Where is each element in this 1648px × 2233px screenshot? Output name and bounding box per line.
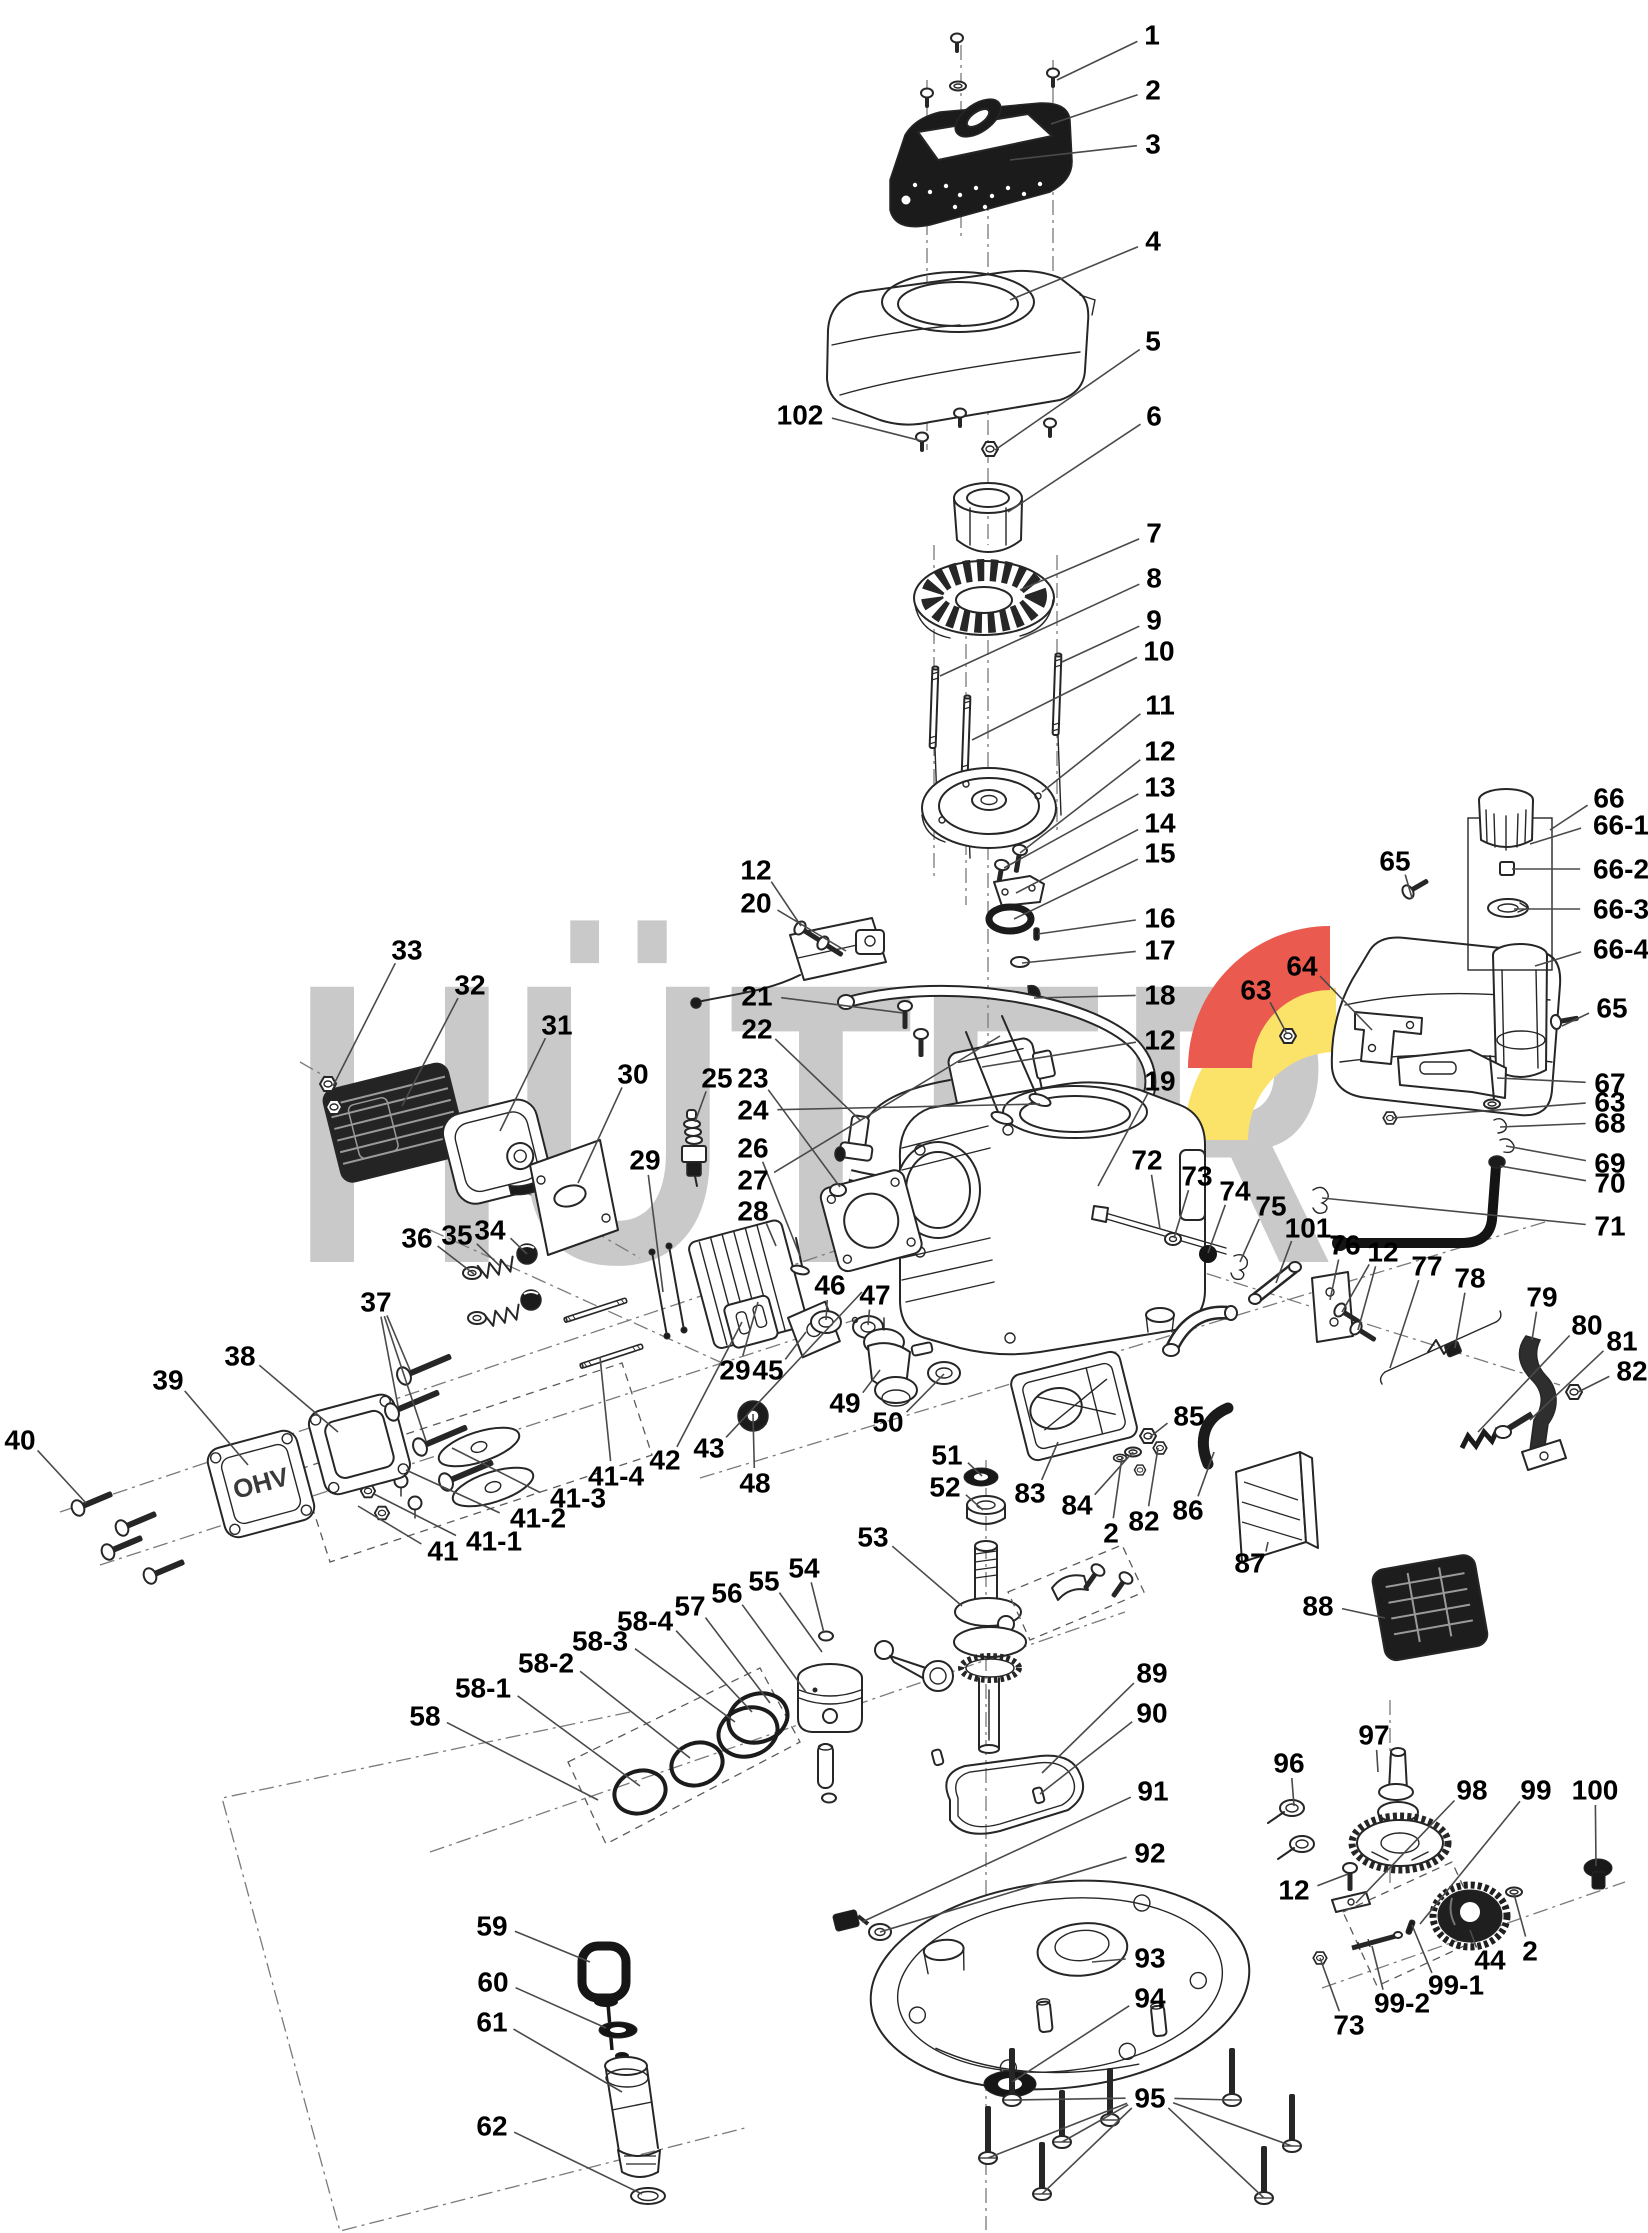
callout-leader-12 xyxy=(1317,1874,1348,1886)
oil-plug-100 xyxy=(1584,1859,1612,1889)
rod-cap-box xyxy=(1008,1545,1144,1640)
callout-leader-12 xyxy=(1358,1266,1376,1330)
callout-leader-40 xyxy=(38,1450,86,1503)
callout-label-99-1: 99-1 xyxy=(1428,1970,1484,2001)
callout-label-49: 49 xyxy=(829,1388,860,1419)
callout-label-74: 74 xyxy=(1219,1176,1251,1207)
callout-label-98: 98 xyxy=(1456,1775,1487,1806)
tappets-96 xyxy=(1268,1800,1314,1859)
callout-label-15: 15 xyxy=(1144,838,1175,869)
callout-label-54: 54 xyxy=(788,1553,820,1584)
callout-label-22: 22 xyxy=(741,1014,772,1045)
callout-leader-95 xyxy=(1168,2108,1264,2198)
air-filter-cover xyxy=(1371,1553,1489,1662)
callout-label-77: 77 xyxy=(1411,1251,1442,1282)
callout-label-63: 63 xyxy=(1240,975,1271,1006)
callout-label-58-3: 58-3 xyxy=(572,1626,628,1657)
callout-leader-82 xyxy=(1578,1376,1609,1392)
callout-label-12: 12 xyxy=(1144,1025,1175,1056)
callout-leader-70 xyxy=(1500,1166,1586,1181)
callout-label-17: 17 xyxy=(1144,935,1175,966)
callout-leader-14 xyxy=(1016,830,1138,893)
callout-label-53: 53 xyxy=(857,1522,888,1553)
callout-label-58: 58 xyxy=(409,1701,440,1732)
flywheel-magneto-disc xyxy=(922,768,1056,848)
callout-leader-71 xyxy=(1322,1198,1586,1225)
callout-label-80: 80 xyxy=(1571,1310,1602,1341)
callout-label-50: 50 xyxy=(872,1407,903,1438)
callout-label-88: 88 xyxy=(1302,1591,1333,1622)
callout-label-31: 31 xyxy=(541,1010,572,1041)
callout-label-24: 24 xyxy=(737,1095,769,1126)
callout-label-64: 64 xyxy=(1286,951,1318,982)
callout-label-13: 13 xyxy=(1144,772,1175,803)
callout-label-101: 101 xyxy=(1285,1213,1332,1244)
callout-label-47: 47 xyxy=(859,1280,890,1311)
flywheel-fan xyxy=(914,561,1054,638)
callout-leader-69 xyxy=(1506,1146,1586,1161)
callout-label-100: 100 xyxy=(1572,1775,1619,1806)
callout-label-81: 81 xyxy=(1606,1326,1637,1357)
callout-label-33: 33 xyxy=(391,935,422,966)
callout-label-12: 12 xyxy=(1144,736,1175,767)
callout-label-34: 34 xyxy=(474,1215,506,1246)
callout-label-23: 23 xyxy=(737,1063,768,1094)
callout-label-65: 65 xyxy=(1596,993,1627,1024)
air-filter-element xyxy=(1236,1452,1318,1562)
callout-label-12: 12 xyxy=(1278,1875,1309,1906)
callout-label-78: 78 xyxy=(1454,1263,1485,1294)
callout-leader-97 xyxy=(1377,1750,1378,1772)
callout-label-20: 20 xyxy=(740,888,771,919)
blower-shroud xyxy=(827,271,1095,438)
callout-leader-58-1 xyxy=(518,1696,640,1786)
callout-label-26: 26 xyxy=(737,1133,768,1164)
callout-label-82: 82 xyxy=(1616,1356,1647,1387)
callout-label-62: 62 xyxy=(476,2111,507,2142)
callout-label-68: 68 xyxy=(1594,1108,1625,1139)
callout-label-66-4: 66-4 xyxy=(1593,934,1648,965)
callout-label-46: 46 xyxy=(814,1270,845,1301)
callout-label-52: 52 xyxy=(929,1472,960,1503)
callout-label-45: 45 xyxy=(752,1355,783,1386)
governor-arm-79 xyxy=(1519,1336,1566,1470)
governor-link-77-78 xyxy=(1381,1311,1501,1384)
callout-leader-7 xyxy=(1020,539,1139,590)
callout-leader-61 xyxy=(514,2029,623,2092)
screw-12-cam xyxy=(1343,1863,1357,1891)
callout-label-61: 61 xyxy=(476,2007,507,2038)
fuel-cap xyxy=(1479,789,1533,850)
callout-leader-79 xyxy=(1532,1312,1537,1340)
callout-label-19: 19 xyxy=(1144,1066,1175,1097)
callout-label-90: 90 xyxy=(1136,1698,1167,1729)
callout-label-83: 83 xyxy=(1014,1478,1045,1509)
callout-label-86: 86 xyxy=(1172,1495,1203,1526)
callout-label-30: 30 xyxy=(617,1059,648,1090)
callout-label-94: 94 xyxy=(1134,1983,1166,2014)
callout-leader-82 xyxy=(1149,1448,1158,1506)
oil-seal-51 xyxy=(964,1468,998,1486)
callout-leader-90 xyxy=(1040,1722,1132,1794)
cover-bolts-40 xyxy=(69,1486,187,1586)
callout-label-5: 5 xyxy=(1145,326,1161,357)
callout-leader-54 xyxy=(811,1582,824,1633)
connecting-rod xyxy=(875,1641,953,1691)
callout-label-84: 84 xyxy=(1061,1490,1093,1521)
callout-label-73: 73 xyxy=(1333,2010,1364,2041)
callout-leader-73 xyxy=(1320,1958,1339,2011)
callout-leader-59 xyxy=(515,1931,590,1962)
camshaft xyxy=(1352,1748,1448,1870)
callout-label-41-4: 41-4 xyxy=(588,1461,644,1492)
dipstick-tube xyxy=(605,2057,665,2204)
crankcase-cover xyxy=(860,1863,1259,2108)
callout-label-9: 9 xyxy=(1146,605,1162,636)
callout-label-18: 18 xyxy=(1144,980,1175,1011)
callout-label-27: 27 xyxy=(737,1165,768,1196)
callout-label-75: 75 xyxy=(1255,1191,1286,1222)
valve-cover: OHV xyxy=(205,1428,318,1541)
callout-label-48: 48 xyxy=(739,1468,770,1499)
callout-label-2: 2 xyxy=(1145,75,1161,106)
callout-label-42: 42 xyxy=(649,1445,680,1476)
callout-label-28: 28 xyxy=(737,1196,768,1227)
callout-label-35: 35 xyxy=(441,1220,472,1251)
callout-leader-100 xyxy=(1595,1805,1596,1866)
callout-label-10: 10 xyxy=(1143,636,1174,667)
callout-label-66-3: 66-3 xyxy=(1593,894,1648,925)
callout-label-43: 43 xyxy=(693,1433,724,1464)
callout-leader-95 xyxy=(1173,2103,1292,2146)
callout-leader-58-4 xyxy=(676,1631,752,1712)
callout-label-36: 36 xyxy=(401,1223,432,1254)
callout-label-102: 102 xyxy=(777,400,824,431)
callout-label-56: 56 xyxy=(711,1578,742,1609)
callout-leader-9 xyxy=(1062,626,1139,662)
callout-label-29: 29 xyxy=(629,1145,660,1176)
callout-label-37: 37 xyxy=(360,1287,391,1318)
callout-label-72: 72 xyxy=(1131,1145,1162,1176)
callout-label-41: 41 xyxy=(427,1536,458,1567)
callout-label-76: 76 xyxy=(1329,1230,1360,1261)
governor-bracket-76 xyxy=(1312,1272,1379,1346)
callout-label-82: 82 xyxy=(1128,1506,1159,1537)
callout-label-99: 99 xyxy=(1520,1775,1551,1806)
callout-label-2: 2 xyxy=(1522,1936,1538,1967)
callout-label-70: 70 xyxy=(1594,1168,1625,1199)
callout-leader-95 xyxy=(1042,2108,1132,2194)
case-gasket-89 xyxy=(931,1749,1083,1834)
callout-label-65: 65 xyxy=(1379,846,1410,877)
callout-label-87: 87 xyxy=(1234,1548,1265,1579)
callout-leader-66-1 xyxy=(1530,828,1581,844)
callout-label-2: 2 xyxy=(1103,1518,1119,1549)
callout-label-99-2: 99-2 xyxy=(1374,1988,1430,2019)
callout-label-91: 91 xyxy=(1137,1776,1168,1807)
callout-label-66-2: 66-2 xyxy=(1593,854,1648,885)
callout-label-58-2: 58-2 xyxy=(518,1648,574,1679)
callout-leader-6 xyxy=(1008,424,1141,512)
callout-label-38: 38 xyxy=(224,1341,255,1372)
callout-label-93: 93 xyxy=(1134,1943,1165,1974)
callout-label-60: 60 xyxy=(477,1967,508,1998)
piston xyxy=(798,1664,862,1732)
callout-label-89: 89 xyxy=(1136,1658,1167,1689)
callout-leader-58-2 xyxy=(580,1671,690,1758)
callout-label-32: 32 xyxy=(454,970,485,1001)
callout-leader-2 xyxy=(1514,1894,1526,1937)
callout-label-6: 6 xyxy=(1146,401,1162,432)
callout-label-4: 4 xyxy=(1145,226,1161,257)
callout-label-59: 59 xyxy=(476,1911,507,1942)
exploded-engine-diagram: HÜTER xyxy=(0,0,1648,2233)
callout-leader-58 xyxy=(447,1723,598,1800)
dipstick xyxy=(582,1946,637,2060)
callout-label-92: 92 xyxy=(1134,1838,1165,1869)
callout-label-11: 11 xyxy=(1145,690,1175,721)
callout-leader-66 xyxy=(1550,805,1588,830)
callout-label-79: 79 xyxy=(1526,1282,1557,1313)
callout-label-7: 7 xyxy=(1146,518,1162,549)
callout-label-51: 51 xyxy=(931,1440,962,1471)
callout-label-8: 8 xyxy=(1146,563,1162,594)
callout-label-1: 1 xyxy=(1144,20,1160,51)
breather-tube xyxy=(1203,1408,1228,1464)
callout-leader-78 xyxy=(1455,1293,1465,1348)
callout-leader-53 xyxy=(892,1546,962,1606)
callout-label-73: 73 xyxy=(1181,1161,1212,1192)
callout-label-14: 14 xyxy=(1144,808,1176,839)
callout-leader-77 xyxy=(1390,1280,1419,1368)
callout-label-21: 21 xyxy=(741,981,772,1012)
recoil-starter-cover xyxy=(890,92,1072,227)
callout-leader-95 xyxy=(988,2103,1127,2158)
carb-spacer-gasket xyxy=(928,1362,960,1384)
callout-label-12: 12 xyxy=(740,855,771,886)
callout-label-57: 57 xyxy=(674,1591,705,1622)
bolt-102 xyxy=(916,433,928,453)
bolt-81 xyxy=(1495,1414,1532,1438)
fuel-filter-neck xyxy=(1493,944,1547,1077)
callout-leader-58-3 xyxy=(635,1649,735,1722)
callout-label-96: 96 xyxy=(1273,1748,1304,1779)
callout-label-16: 16 xyxy=(1144,903,1175,934)
callout-leader-89 xyxy=(1042,1683,1134,1773)
callout-leader-1 xyxy=(1057,41,1137,80)
callout-label-39: 39 xyxy=(152,1365,183,1396)
callout-label-55: 55 xyxy=(748,1566,779,1597)
air-filter-base xyxy=(1009,1350,1139,1462)
callout-leader-38 xyxy=(259,1365,338,1432)
callout-leader-2 xyxy=(1113,1457,1122,1518)
callout-label-3: 3 xyxy=(1145,129,1161,160)
callout-label-29: 29 xyxy=(719,1355,750,1386)
callout-label-12: 12 xyxy=(1367,1237,1398,1268)
callout-leader-41 xyxy=(358,1506,421,1544)
callout-label-97: 97 xyxy=(1358,1720,1389,1751)
callout-leader-41-4 xyxy=(600,1357,611,1461)
callout-label-71: 71 xyxy=(1594,1211,1625,1242)
callout-label-66-1: 66-1 xyxy=(1593,810,1648,841)
callout-label-58-1: 58-1 xyxy=(455,1673,511,1704)
oil-drain-plug xyxy=(832,1909,891,1940)
nut-63 xyxy=(1280,1029,1296,1043)
callout-label-40: 40 xyxy=(4,1425,35,1456)
crankshaft xyxy=(954,1541,1026,1753)
piston-rings xyxy=(568,1668,800,1844)
muffler-nut xyxy=(326,1100,342,1114)
callout-label-25: 25 xyxy=(701,1063,732,1094)
callout-label-95: 95 xyxy=(1134,2083,1165,2114)
screw-65 xyxy=(1400,874,1431,900)
callout-leader-68 xyxy=(1500,1124,1586,1128)
callout-label-85: 85 xyxy=(1173,1401,1204,1432)
